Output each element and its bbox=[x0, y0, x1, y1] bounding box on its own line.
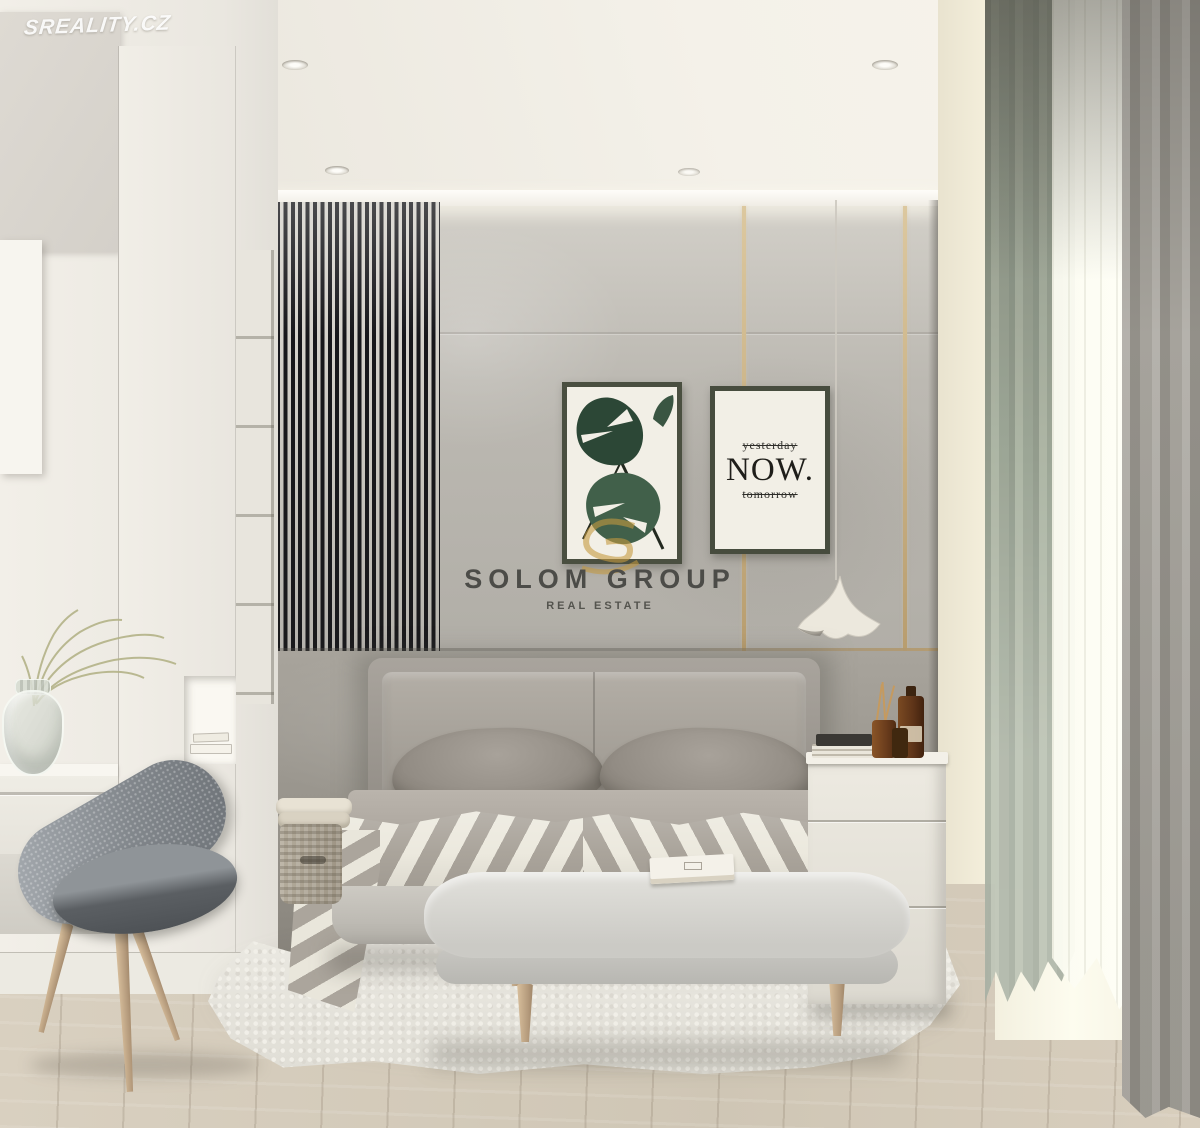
poster-word-yesterday: yesterday bbox=[743, 438, 798, 453]
upper-cabinet bbox=[0, 240, 42, 474]
niche-book bbox=[193, 732, 229, 742]
poster-word-tomorrow: tomorrow bbox=[742, 487, 797, 502]
woven-basket bbox=[280, 824, 342, 904]
recessed-light bbox=[872, 60, 898, 70]
bedroom-photo: yesterday NOW. tomorrow SOLOM GROUP REAL… bbox=[0, 0, 1200, 1128]
brand-title: SOLOM GROUP bbox=[420, 564, 780, 595]
gold-wall-strip bbox=[903, 206, 907, 652]
chair-shadow bbox=[30, 1052, 260, 1078]
niche-book bbox=[190, 744, 232, 754]
small-bottle bbox=[892, 728, 908, 758]
pendant-cord bbox=[835, 200, 837, 580]
bench-shadow bbox=[430, 1042, 900, 1066]
open-shelf-column bbox=[236, 250, 274, 704]
now-poster: yesterday NOW. tomorrow bbox=[710, 386, 830, 554]
curtain-right-gray bbox=[1122, 0, 1200, 1118]
basket-handle bbox=[300, 856, 326, 864]
slat-panel-shading bbox=[276, 202, 440, 652]
wardrobe-side-panel bbox=[0, 12, 120, 252]
recessed-light bbox=[325, 166, 349, 175]
book-stack bbox=[812, 744, 874, 758]
brand-subtitle: REAL ESTATE bbox=[420, 600, 780, 612]
dark-book bbox=[816, 734, 872, 746]
recessed-light bbox=[282, 60, 308, 70]
poster-word-now: NOW. bbox=[726, 453, 814, 488]
book-label bbox=[684, 862, 702, 870]
nightstand-drawer-seam bbox=[808, 820, 946, 822]
pendant-lamp bbox=[790, 572, 890, 648]
bench-cushion bbox=[424, 872, 910, 958]
recessed-light bbox=[678, 168, 700, 176]
